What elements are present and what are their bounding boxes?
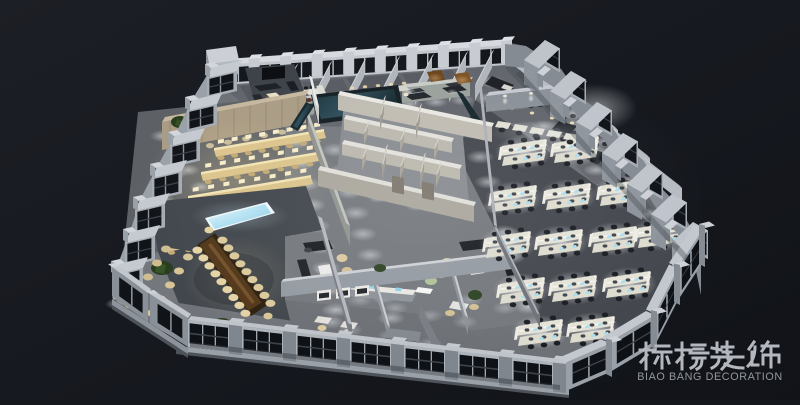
svg-text:BIAO BANG DECORATION: BIAO BANG DECORATION xyxy=(637,371,783,383)
